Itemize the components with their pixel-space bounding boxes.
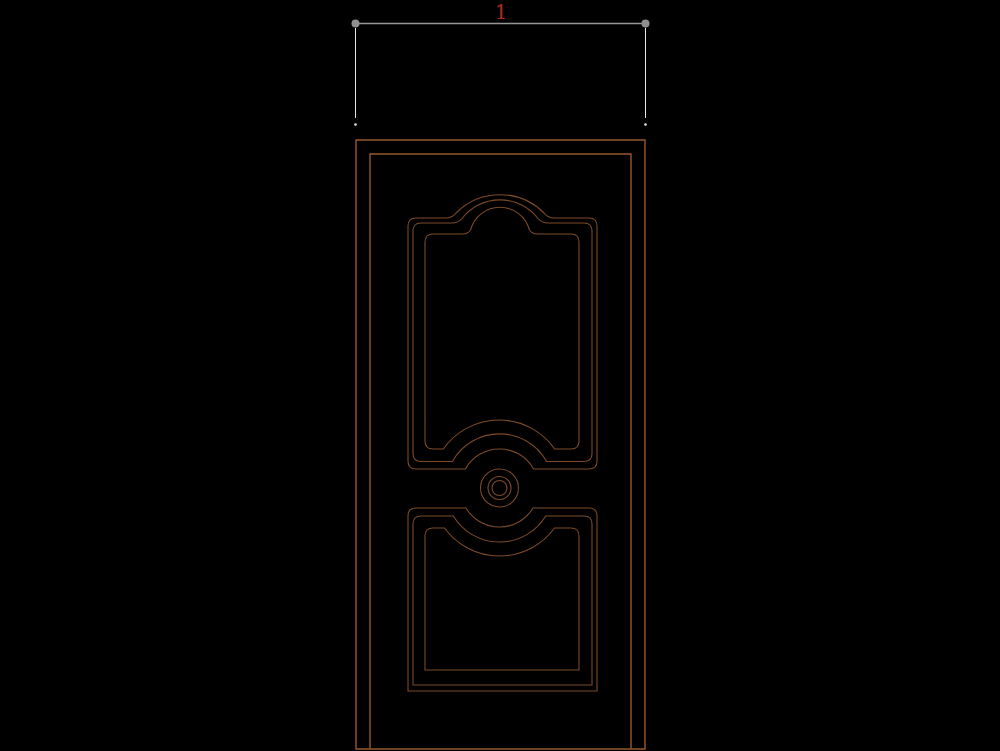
lower-panel: [408, 508, 597, 691]
rosette-center-circle: [492, 481, 507, 496]
upper-panel-middle-molding: [413, 200, 592, 462]
upper-panel-inner-field: [425, 207, 579, 449]
rosette-medallion: [481, 469, 519, 507]
cad-viewport: 1: [0, 0, 1000, 751]
lower-panel-outer-molding: [408, 508, 597, 691]
dimension-value-text: 1: [495, 0, 508, 24]
cad-canvas: 1: [0, 0, 1000, 751]
door-outer-edge: [356, 140, 645, 749]
dimension-annotation: 1: [352, 0, 650, 126]
upper-panel: [408, 195, 597, 469]
door-drawing: [356, 140, 645, 749]
upper-panel-outer-molding: [408, 195, 597, 469]
dimension-dot-marker-right: [642, 20, 650, 28]
dimension-dot-marker-left: [352, 20, 360, 28]
extension-end-dot-left: [354, 123, 357, 126]
extension-end-dot-right: [644, 123, 647, 126]
lower-panel-inner-field: [425, 528, 579, 670]
lower-panel-middle-molding: [413, 516, 592, 685]
rosette-outer-circle: [481, 469, 519, 507]
